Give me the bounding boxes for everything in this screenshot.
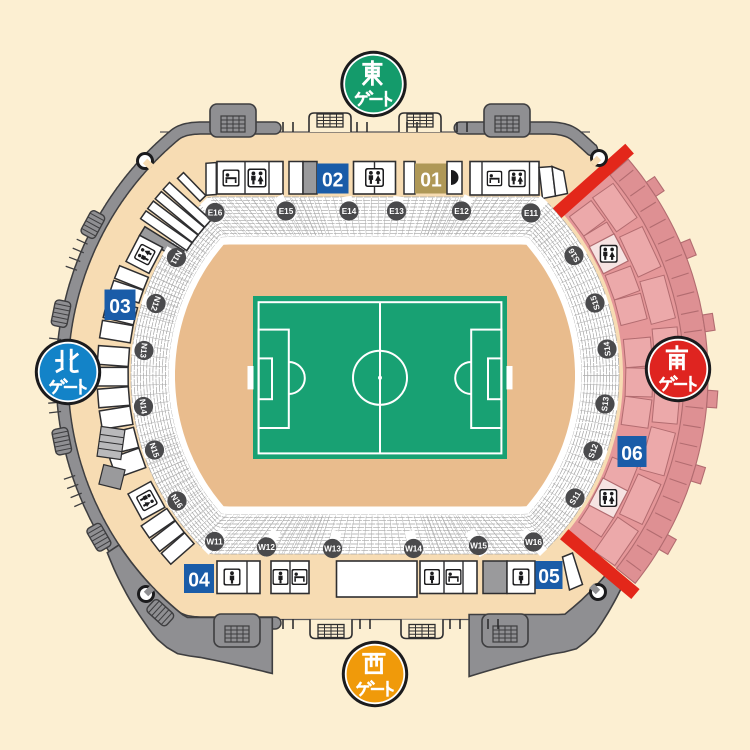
svg-text:E13: E13 [389, 207, 404, 216]
svg-text:01: 01 [420, 170, 442, 192]
svg-text:05: 05 [538, 566, 560, 588]
svg-text:06: 06 [621, 443, 643, 465]
svg-text:02: 02 [322, 170, 344, 192]
svg-text:W13: W13 [324, 544, 341, 553]
svg-text:03: 03 [109, 296, 131, 318]
svg-text:S13: S13 [600, 396, 611, 412]
svg-text:W14: W14 [405, 544, 422, 553]
svg-text:E15: E15 [279, 207, 294, 216]
svg-text:W11: W11 [206, 537, 223, 546]
svg-text:04: 04 [188, 570, 210, 592]
svg-text:E14: E14 [342, 207, 357, 216]
svg-text:E12: E12 [454, 207, 469, 216]
svg-text:W16: W16 [525, 538, 542, 547]
svg-text:W12: W12 [258, 543, 275, 552]
svg-text:S14: S14 [602, 341, 613, 357]
svg-text:E11: E11 [524, 209, 539, 218]
svg-text:N13: N13 [138, 342, 149, 358]
svg-text:W15: W15 [470, 541, 487, 550]
svg-text:E16: E16 [208, 208, 223, 217]
